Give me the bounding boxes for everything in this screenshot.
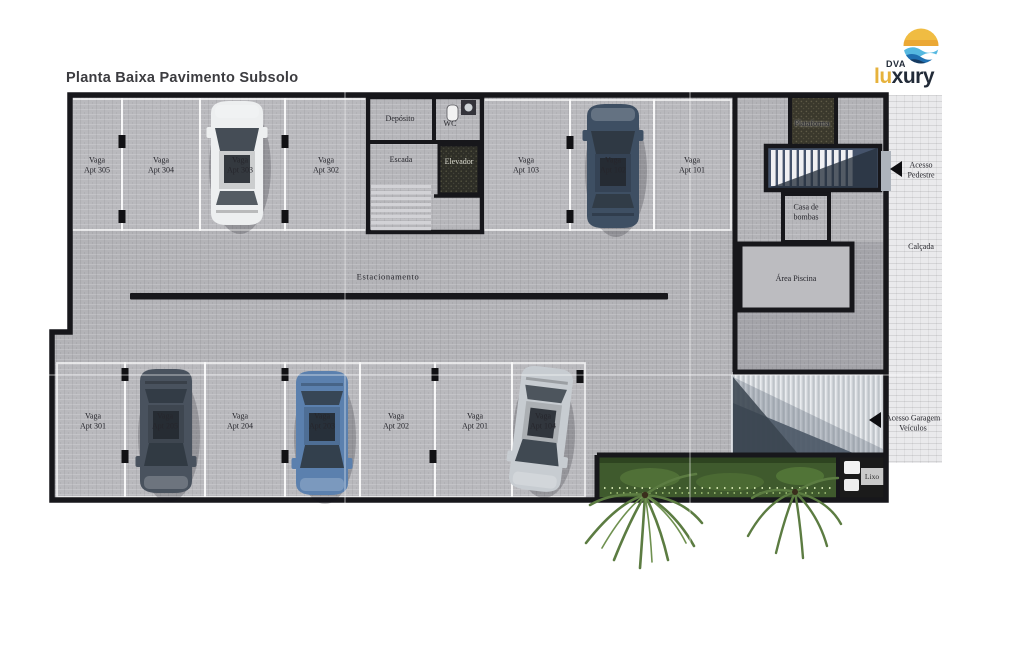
- label-elevador: Elevador: [445, 157, 474, 167]
- stall-label-303: Vaga Apt 303: [227, 156, 253, 177]
- stall-label-201: Vaga Apt 201: [462, 412, 488, 433]
- vehicle-ramp: [731, 375, 883, 455]
- label-area-piscina: Área Piscina: [776, 274, 817, 284]
- label-acesso-garagem-veiculos: Acesso Garagem Veículos: [886, 414, 940, 435]
- stall-label-302: Vaga Apt 302: [313, 156, 339, 177]
- trash-bin: [844, 479, 859, 491]
- brand-logo-icon: [903, 28, 939, 64]
- car-top-view-203: [292, 371, 353, 495]
- landscape-strip: [599, 457, 838, 498]
- stall-label-301: Vaga Apt 301: [80, 412, 106, 433]
- label-plataforma: Plataforma: [794, 119, 829, 129]
- pedestrian-opening: [881, 151, 891, 191]
- stall-label-204: Vaga Apt 204: [227, 412, 253, 433]
- stall-label-304: Vaga Apt 304: [148, 156, 174, 177]
- entry-stairs: [766, 146, 880, 190]
- stall-label-103: Vaga Apt 103: [513, 156, 539, 177]
- label-lixo: Lixo: [865, 472, 879, 482]
- label-calcada: Calçada: [908, 242, 934, 252]
- label-acesso-pedestre: Acesso Pedestre: [907, 161, 934, 182]
- trash-bin: [844, 461, 860, 474]
- brand-logo-wordmark: luxury: [874, 65, 934, 89]
- label-casa-de-bombas: Casa de bombas: [793, 203, 818, 224]
- brand-logo-xury: xury: [892, 65, 934, 88]
- sidewalk-area: [886, 95, 942, 463]
- stall-label-104: Vaga Apt 104: [530, 412, 556, 433]
- label-estacionamento: Estacionamento: [357, 271, 420, 282]
- stall-label-205: Vaga Apt 205: [152, 412, 178, 433]
- stall-label-305: Vaga Apt 305: [84, 156, 110, 177]
- page-title: Planta Baixa Pavimento Subsolo: [66, 70, 298, 86]
- label-wc: WC: [444, 119, 457, 129]
- brand-logo-lu: lu: [874, 65, 892, 88]
- lane-divider-bar: [130, 293, 668, 300]
- stall-label-203: Vaga Apt 203: [309, 412, 335, 433]
- stall-label-101: Vaga Apt 101: [679, 156, 705, 177]
- floor-plan-drawing: [0, 0, 1024, 652]
- elevator-shaft: [439, 145, 479, 194]
- stall-label-202: Vaga Apt 202: [383, 412, 409, 433]
- blueprint-page: Planta Baixa Pavimento Subsolo DVA luxur…: [0, 0, 1024, 652]
- label-deposito: Depósito: [386, 114, 415, 124]
- label-escada: Escada: [390, 155, 413, 165]
- stall-label-102: Vaga Apt 102: [600, 156, 626, 177]
